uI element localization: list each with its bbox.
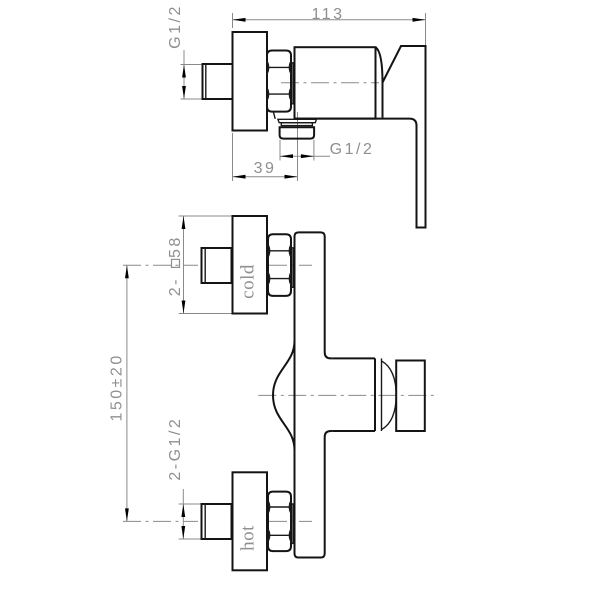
- svg-text:G1/2: G1/2: [167, 4, 184, 49]
- svg-text:G1/2: G1/2: [330, 141, 375, 158]
- svg-text:113: 113: [311, 6, 344, 23]
- svg-text:58: 58: [167, 235, 184, 258]
- svg-text:39: 39: [254, 160, 277, 177]
- svg-text:2-: 2-: [167, 277, 184, 296]
- svg-text:hot: hot: [238, 525, 259, 551]
- svg-text:150±20: 150±20: [109, 353, 126, 421]
- svg-text:2-G1/2: 2-G1/2: [167, 417, 184, 481]
- svg-text:cold: cold: [238, 264, 259, 299]
